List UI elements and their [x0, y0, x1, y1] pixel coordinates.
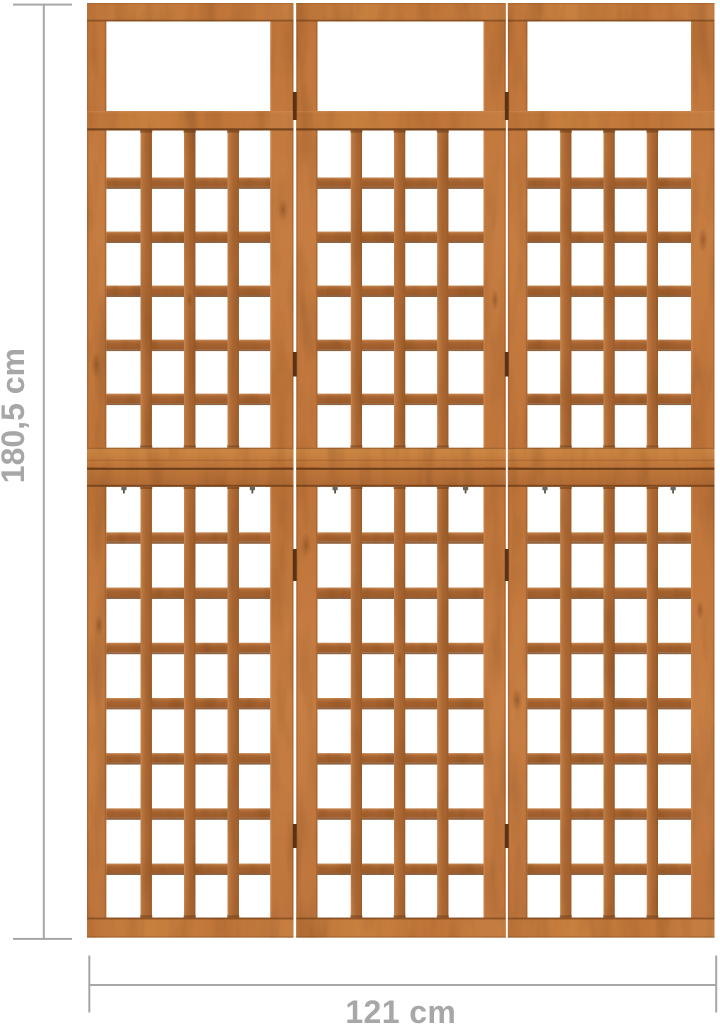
svg-text:180,5 cm: 180,5 cm	[0, 348, 31, 483]
svg-text:121 cm: 121 cm	[345, 994, 456, 1027]
